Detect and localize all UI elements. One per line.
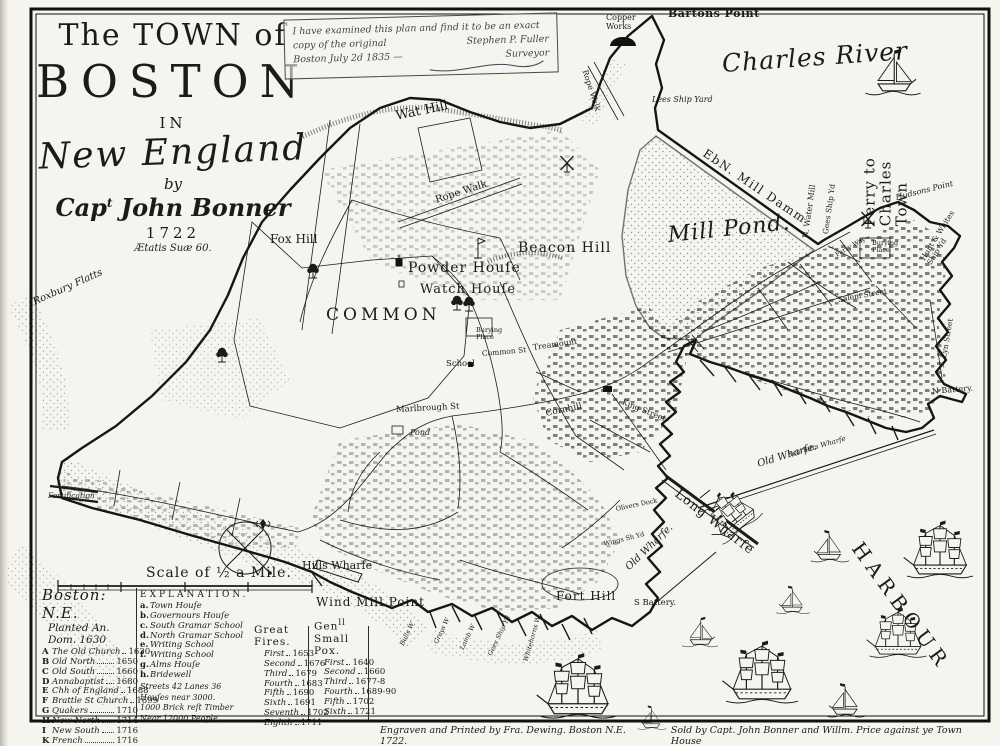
imprint-right: Sold by Capt. John Bonner and Willm. Pri…	[671, 725, 980, 746]
map-label-ferry-way: Ferry Way	[834, 236, 867, 259]
great-fires-title: Great Fires.	[254, 624, 310, 648]
scale-label: Scale of ½ a Mile.	[146, 566, 292, 581]
map-label-olivers-dock: Olivers Dock	[615, 497, 658, 513]
map-label-s-battery: S Battery.	[634, 599, 676, 608]
legend-churches-subtitle: Planted An. Dom. 1630	[48, 622, 138, 646]
map-label-powder-house: Powder Houſe	[408, 261, 521, 276]
map-label-hills-wharfe: Hills Wharfe	[302, 560, 372, 572]
map-label-bartons-point: Bartons Point	[668, 8, 760, 20]
map-label-whitehorns-wharf: Whitehorns W	[523, 615, 543, 662]
legend-note: 1000 Brick reſt Timber	[140, 703, 248, 713]
map-label-old-wharfe-2: Old Wharfe.	[624, 523, 676, 573]
legend-rule-3	[368, 626, 369, 720]
map-label-rope-walk-center: Rope Walk	[434, 180, 488, 207]
map-label-bulls-wharf: Bulls W	[399, 621, 416, 647]
map-label-mill-pond: Mill Pond.	[667, 211, 792, 247]
legend-churches: Boston: N.E. Planted An. Dom. 1630 AThe …	[42, 586, 138, 746]
scan-edge	[0, 0, 9, 746]
imprint-left: Engraven and Printed by Fra. Dewing. Bos…	[380, 725, 643, 746]
map-label-roxbury-flatts: Roxbury Flatts	[32, 268, 105, 308]
map-label-fortification: Fortification	[48, 492, 95, 500]
map-label-old-wharfe-1: Old Wharfe.	[756, 442, 818, 470]
map-label-cornhill: Cornhill	[545, 402, 583, 419]
map-label-school: School	[446, 360, 475, 369]
pox-title-main: Gen	[314, 621, 338, 633]
map-label-wings-ship-yd: Wings Sh Yd	[603, 531, 645, 548]
map-label-king-street: King Street	[620, 398, 666, 423]
map-label-copper-works: Copper Works	[606, 14, 636, 31]
map-label-fox-hill: Fox Hill	[270, 233, 317, 246]
pox-row: Sixth1721	[314, 708, 368, 718]
legend-great-fires: Great Fires. First1653Second1676Third167…	[254, 624, 310, 729]
map-label-charles-river: Charles River	[721, 37, 909, 77]
small-pox-title: Genll Small Pox.	[314, 618, 368, 657]
legend-churches-title: Boston: N.E.	[42, 586, 107, 622]
imprint: Engraven and Printed by Fra. Dewing. Bos…	[380, 725, 980, 746]
map-label-treamount: Treamount	[532, 338, 577, 353]
explanation-row: h.Bridewell	[140, 671, 248, 681]
legend-rule-1	[136, 588, 137, 718]
map-label-pond: Pond	[410, 429, 430, 438]
map-label-hunt-whites-ship-yd: Hunt & Whites Ship Yd	[919, 195, 972, 266]
map-sheet: The TOWN of BOSTON IN New England by Cap…	[0, 0, 1000, 746]
map-label-beacon-hill: Beacon Hill	[518, 241, 611, 256]
legend-small-pox: Genll Small Pox. First1640Second1660Thir…	[314, 618, 368, 718]
map-label-n-battery: N Battery.	[932, 384, 974, 396]
map-label-lamb-wharf: Lamb W	[459, 623, 477, 651]
map-label-salem-street: Salem Street	[837, 287, 887, 304]
map-label-burying-place-north: Burying Place	[872, 240, 898, 254]
legend-note: Streets 42 Lanes 36	[140, 682, 248, 692]
map-label-fort-hill: Fort Hill	[556, 590, 616, 603]
map-label-burying-place-common: Burying Place	[476, 327, 502, 341]
map-label-gees-ship-yd-north: Gees Ship Yd	[822, 184, 837, 235]
map-label-wind-mill-point: Wind Mill Point	[316, 596, 425, 609]
map-label-gees-ship-yd-south: Gees Ship Yd	[487, 615, 512, 657]
pox-title-rest: Small Pox.	[314, 633, 349, 657]
legend-note: Houſes near 3000.	[140, 693, 248, 703]
map-label-common: COMMON	[326, 306, 441, 324]
map-label-long-wharfe: Long Wharfe	[672, 487, 757, 557]
map-label-lyn-street: Lyn Street	[940, 318, 955, 359]
map-label-rope-walk-barton: Rope Walk	[580, 69, 601, 113]
map-label-marlbrough-st: Marlbrough St	[396, 403, 460, 415]
map-label-lees-ship-yard: Lees Ship Yard	[652, 96, 713, 105]
map-label-wat-hill: Wat Hill	[395, 99, 450, 124]
legend-explanation-title: EXPLANATION.	[140, 590, 248, 600]
church-row: KFrench1716	[42, 737, 138, 746]
map-label-common-st: Common St	[482, 346, 527, 358]
map-label-ferry-to-charles-town: Ferry to Charles Town	[862, 112, 911, 226]
pox-title-sup: ll	[338, 618, 346, 628]
map-label-watch-house: Watch Houſe	[420, 283, 516, 297]
legend-rule-2	[308, 626, 309, 720]
legend-explanation: EXPLANATION. a.Town Houſeb.Governours Ho…	[140, 590, 248, 724]
map-label-n-water-mill: N. Water Mill	[802, 184, 818, 239]
fire-row: Eighth1711	[254, 719, 310, 729]
legend-note: Near 12000 People.	[140, 714, 248, 724]
map-label-grays-wharf: Grays W	[433, 617, 452, 645]
map-label-harbour: HARBOUR	[847, 538, 954, 674]
